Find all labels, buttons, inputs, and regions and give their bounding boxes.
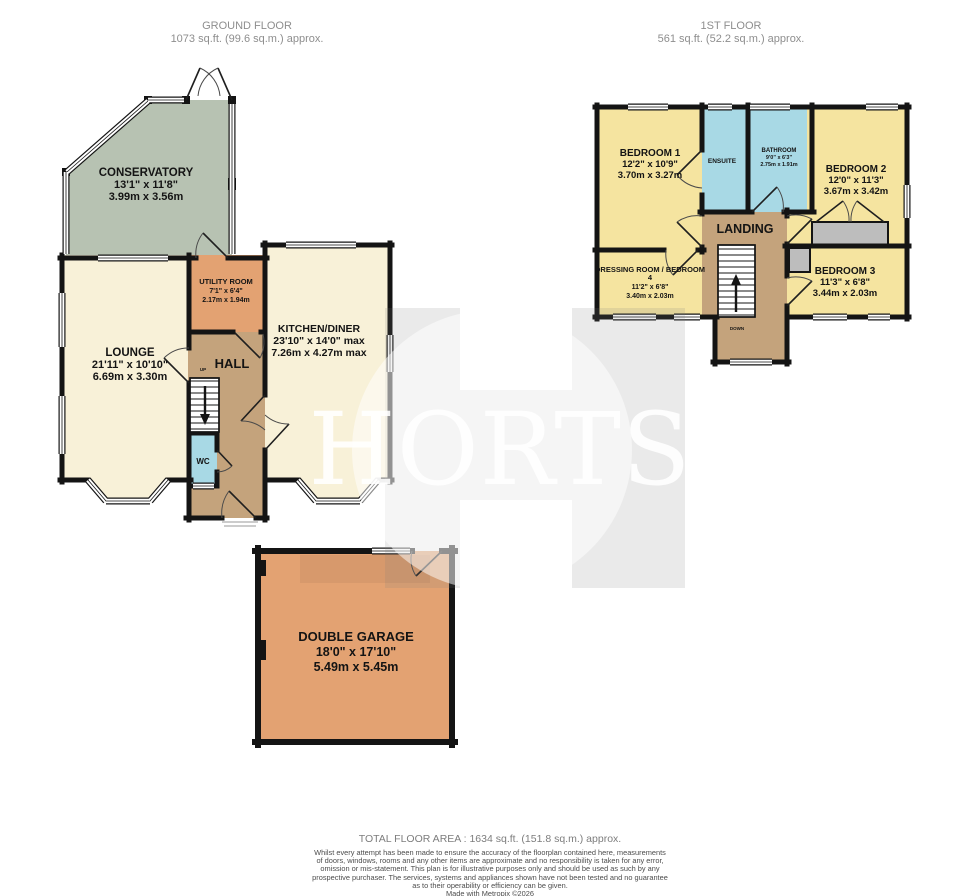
- room-metric-utility: 2.17m x 1.94m: [202, 297, 249, 304]
- room-imperial-dressing: 11'2" x 6'8": [632, 284, 669, 291]
- stairs-up: [190, 378, 219, 432]
- room-imperial-bedroom1: 12'2" x 10'9": [622, 159, 678, 170]
- bedroom2-wardrobe: [812, 222, 888, 246]
- floorplan-page: GROUND FLOOR 1073 sq.ft. (99.6 sq.m.) ap…: [0, 0, 980, 896]
- room-metric-conservatory: 3.99m x 3.56m: [109, 191, 184, 203]
- stairs-down-label: DOWN: [730, 326, 744, 331]
- footer: TOTAL FLOOR AREA : 1634 sq.ft. (151.8 sq…: [0, 833, 980, 896]
- room-label-kitchen: KITCHEN/DINER: [278, 323, 361, 335]
- room-label-ensuite: ENSUITE: [708, 158, 737, 165]
- room-imperial-conservatory: 13'1" x 11'8": [114, 179, 178, 191]
- first-floor-plan: BEDROOM 1 12'2" x 10'9" 3.70m x 3.27m EN…: [595, 105, 909, 364]
- room-label-conservatory: CONSERVATORY: [99, 167, 194, 179]
- room-metric-dressing: 3.40m x 2.03m: [626, 293, 673, 300]
- stairs-up-label: UP: [200, 367, 206, 372]
- room-label-landing: LANDING: [717, 222, 774, 236]
- room-label-bedroom2: BEDROOM 2: [826, 164, 887, 175]
- landing-extension: [715, 317, 787, 362]
- room-label-hall: HALL: [215, 356, 250, 371]
- room-metric-bedroom2: 3.67m x 3.42m: [824, 186, 888, 197]
- room-label-wc: WC: [196, 457, 210, 466]
- room-label-bathroom: BATHROOM: [762, 148, 797, 154]
- room-label-bedroom1: BEDROOM 1: [620, 148, 681, 159]
- room-label-bedroom3: BEDROOM 3: [815, 266, 876, 277]
- room-label-garage: DOUBLE GARAGE: [298, 629, 414, 644]
- room-metric-garage: 5.49m x 5.45m: [314, 660, 399, 674]
- room-imperial-utility: 7'1" x 6'4": [209, 288, 242, 295]
- garage-plan: DOUBLE GARAGE 18'0" x 17'10" 5.49m x 5.4…: [255, 548, 455, 745]
- room-metric-bedroom1: 3.70m x 3.27m: [618, 170, 682, 181]
- room-metric-lounge: 6.69m x 3.30m: [93, 371, 168, 383]
- room-imperial-garage: 18'0" x 17'10": [316, 645, 396, 659]
- landing-cupboard: [789, 248, 810, 272]
- room-imperial-lounge: 21'11" x 10'10": [92, 359, 168, 371]
- stairs-down: [718, 245, 755, 317]
- room-metric-kitchen: 7.26m x 4.27m max: [271, 347, 366, 359]
- room-label-utility: UTILITY ROOM: [199, 277, 253, 286]
- floorplan-drawing: CONSERVATORY 13'1" x 11'8" 3.99m x 3.56m…: [0, 0, 980, 896]
- room-imperial-bathroom: 9'0" x 6'3": [766, 155, 793, 161]
- room-metric-bedroom3: 3.44m x 2.03m: [813, 288, 877, 299]
- kitchen-room: [265, 245, 390, 480]
- ground-floor-plan: CONSERVATORY 13'1" x 11'8" 3.99m x 3.56m…: [60, 68, 392, 526]
- credit-line: Made with Metropix ©2026: [0, 890, 980, 896]
- room-metric-bathroom: 2.75m x 1.91m: [760, 162, 797, 168]
- room-imperial-bedroom3: 11'3" x 6'8": [820, 277, 870, 288]
- total-floor-area: TOTAL FLOOR AREA : 1634 sq.ft. (151.8 sq…: [0, 833, 980, 845]
- room-label-lounge: LOUNGE: [105, 347, 155, 359]
- room-imperial-bedroom2: 12'0" x 11'3": [828, 175, 883, 186]
- room-imperial-kitchen: 23'10" x 14'0" max: [273, 335, 365, 347]
